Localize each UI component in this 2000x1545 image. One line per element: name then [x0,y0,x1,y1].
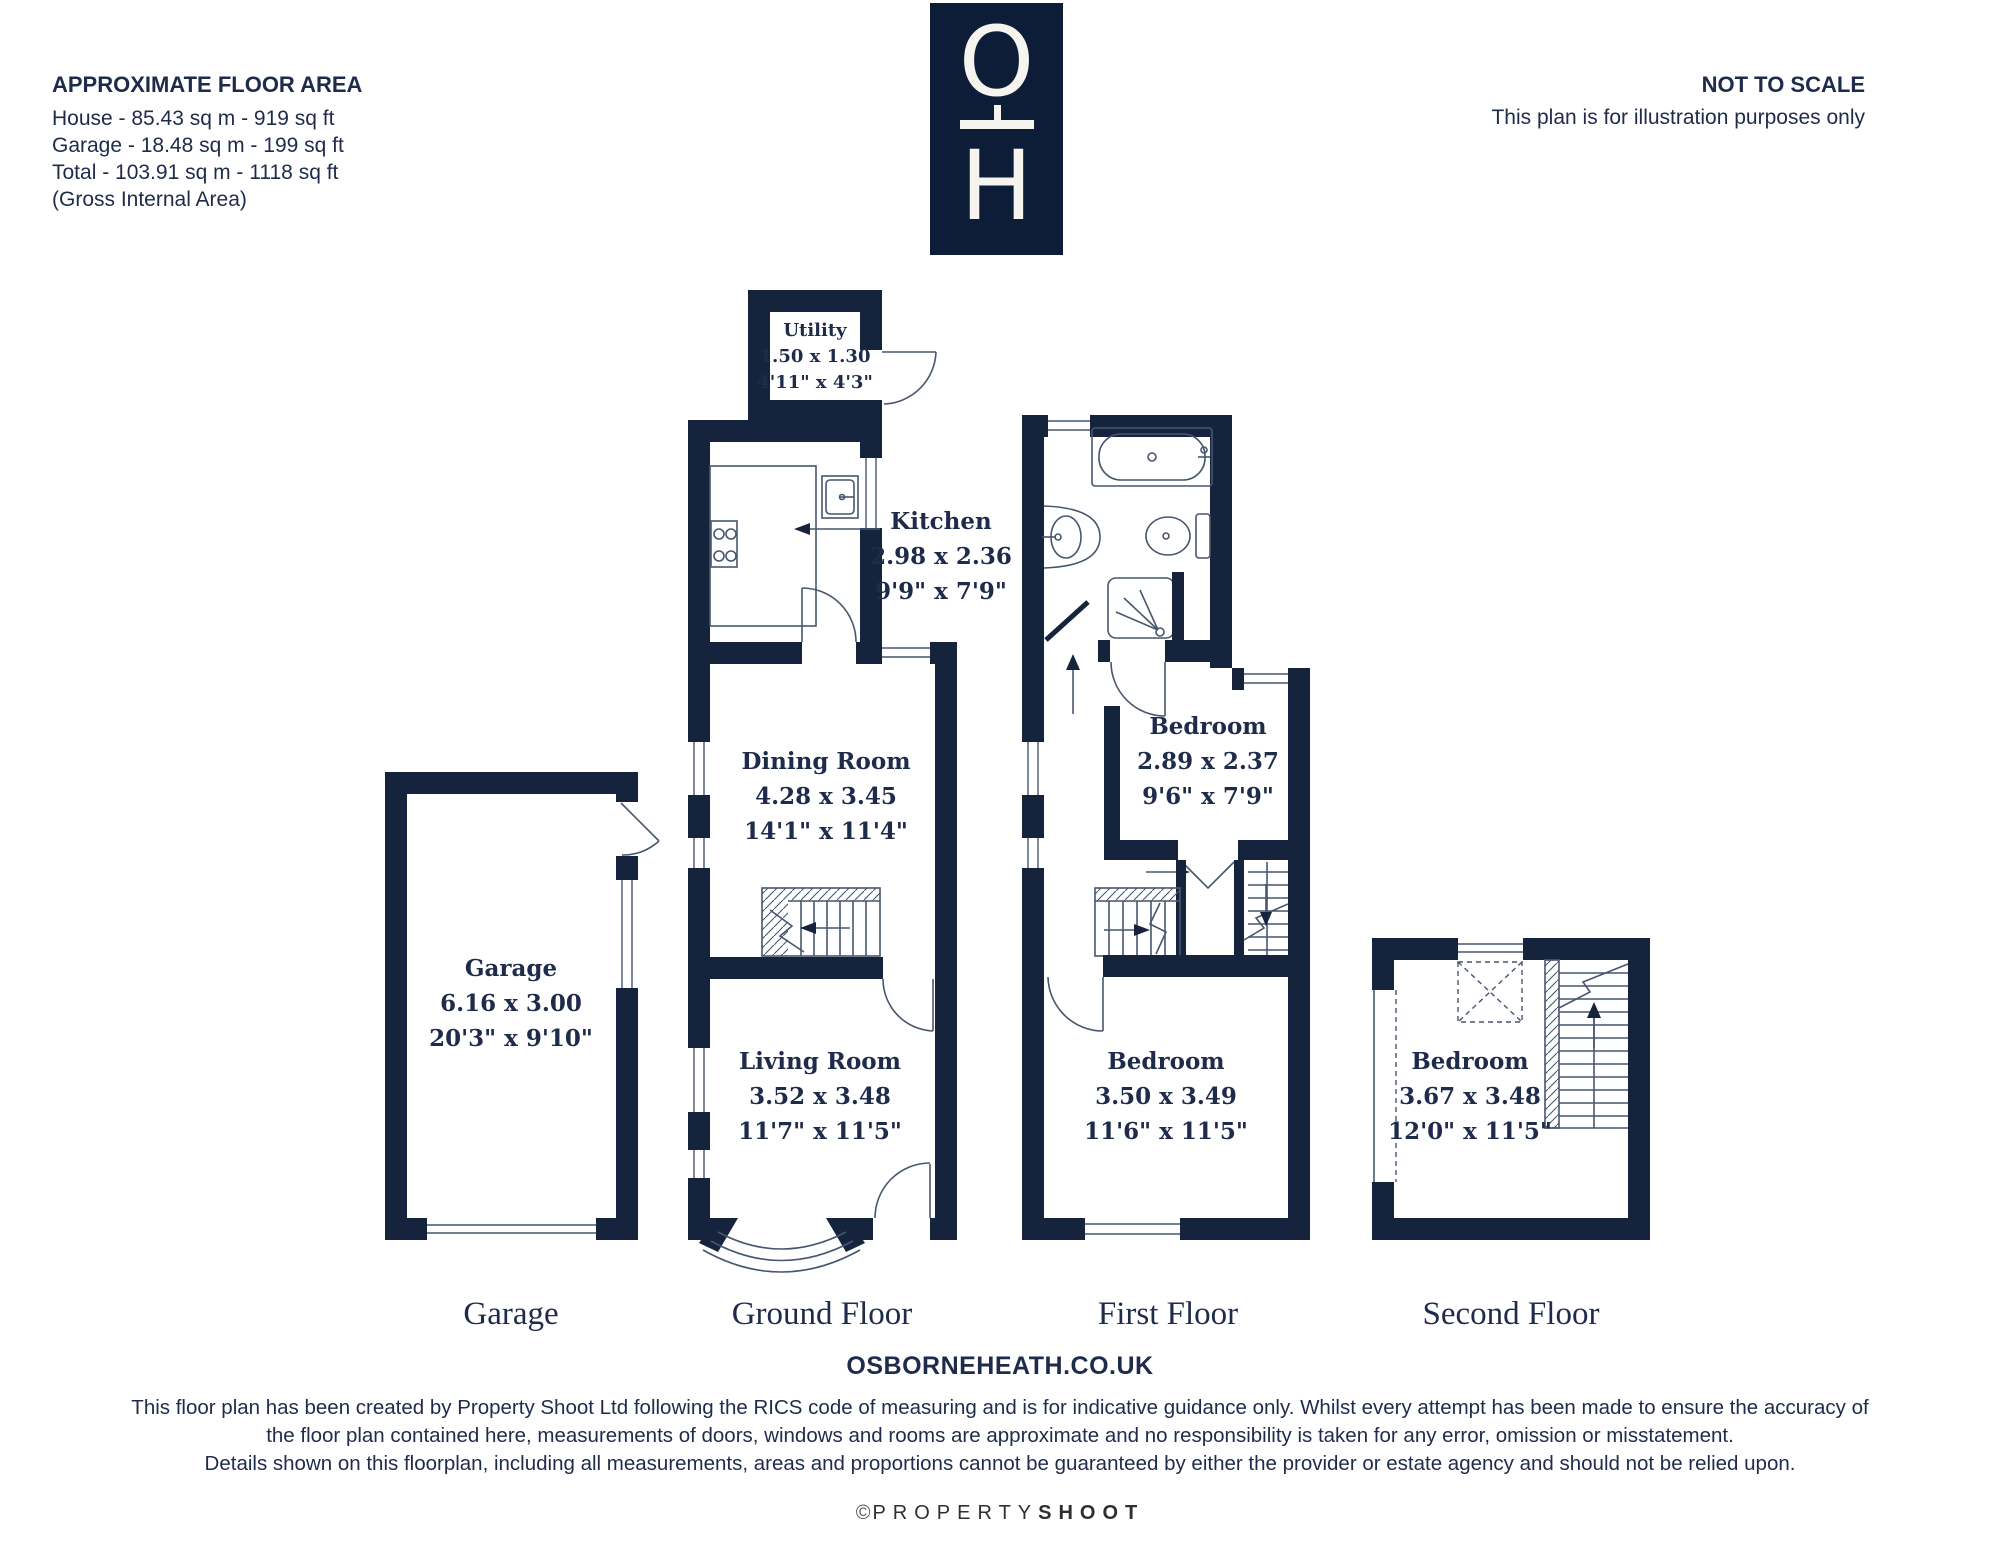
propertyshoot-credit: ©PROPERTYSHOOT [0,1502,2000,1525]
roof-void [1458,962,1522,1022]
kitchen-label: Kitchen 2.98 x 2.36 9'9" x 7'9" [870,505,1012,610]
credit-shoot: SHOOT [1038,1502,1144,1524]
toilet-icon [1146,514,1210,558]
floor-caption-garage: Garage [463,1296,558,1333]
back-bedroom-label: Bedroom 2.89 x 2.37 9'6" x 7'9" [1137,710,1279,815]
second-stairs-icon [1545,960,1628,1128]
copyright-icon: © [856,1502,873,1524]
credit-property: PROPERTY [872,1502,1038,1524]
dining-living-door [883,979,933,1031]
front-bedroom-door [1048,977,1103,1031]
garage-door [427,1225,596,1233]
floor-caption-ground: Ground Floor [732,1296,913,1333]
garage-side-door [621,803,659,855]
website-link[interactable]: OSBORNEHEATH.CO.UK [0,1352,2000,1381]
bathroom-window [1048,421,1090,430]
bathroom-door [1046,602,1088,640]
front-bedroom-label: Bedroom 3.50 x 3.49 11'6" x 11'5" [1084,1045,1248,1150]
dining-rear-window [882,648,930,657]
garage-window [622,880,632,988]
floorplan-page: APPROXIMATE FLOOR AREA House - 85.43 sq … [0,0,2000,1545]
floor-caption-first: First Floor [1098,1296,1238,1333]
stairs-up-arrow [1066,654,1080,714]
shower-icon [1108,578,1174,638]
front-bedroom-window [1085,1224,1180,1234]
back-bedroom-window [1244,674,1292,683]
closet-doors [1182,862,1234,888]
disclaimer-text: This floor plan has been created by Prop… [0,1394,2000,1478]
hob-icon [711,521,737,567]
second-bedroom-window [1458,944,1523,952]
living-room-label: Living Room 3.52 x 3.48 11'7" x 11'5" [738,1045,902,1150]
kitchen-counter [710,466,816,626]
garage-label: Garage 6.16 x 3.00 20'3" x 9'10" [429,952,593,1057]
floor-caption-second: Second Floor [1423,1296,1600,1333]
floorplan-drawing [0,0,2000,1545]
basin-icon [1042,506,1100,568]
ground-stairs-icon [762,888,880,956]
first-stairs-icon [1095,888,1180,956]
second-bedroom-label: Bedroom 3.67 x 3.48 12'0" x 11'5" [1388,1045,1552,1150]
dining-room-label: Dining Room 4.28 x 3.45 14'1" x 11'4" [741,745,910,850]
utility-label: Utility 1.50 x 1.30 4'11" x 4'3" [757,318,873,396]
kitchen-sink-icon [822,476,858,518]
utility-door [882,352,936,404]
bay-window [699,1218,865,1272]
kitchen-dining-door [802,588,856,642]
first-stairs-up-icon [1244,862,1288,955]
front-door [875,1163,930,1218]
